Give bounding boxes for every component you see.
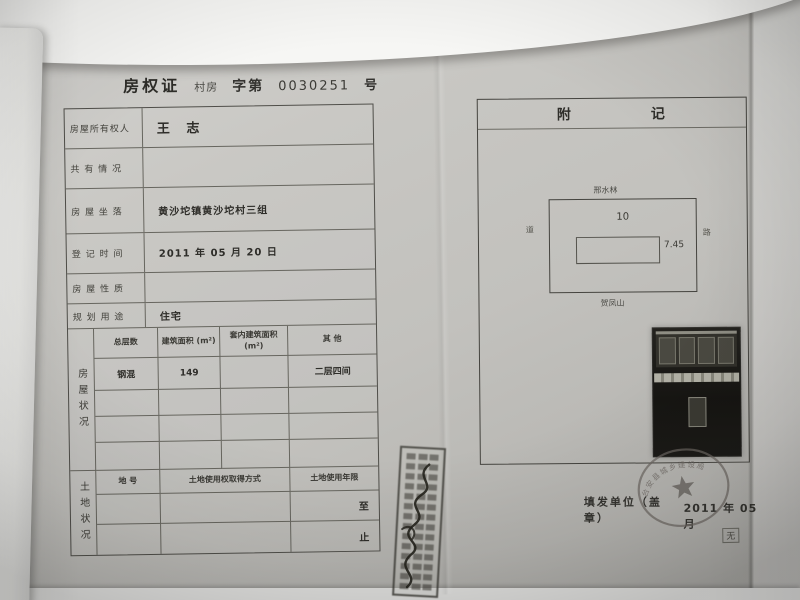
plot-east-label: 路 bbox=[703, 227, 711, 238]
co-ownership-label: 共 有 情 况 bbox=[65, 148, 144, 188]
location-value: 黄沙坨镇黄沙坨村三组 bbox=[144, 184, 375, 232]
scanned-certificate-photo: 房权证 村房 字第 0030251 号 房屋所有权人 王 志 共 有 情 况 房… bbox=[0, 0, 800, 600]
certificate-title-row: 房权证 村房 字第 0030251 号 bbox=[123, 70, 377, 97]
table-cell: 钢混 bbox=[94, 358, 158, 391]
planned-use-label: 规 划 用 途 bbox=[68, 303, 146, 328]
seal-star-icon bbox=[670, 474, 696, 499]
table-cell bbox=[159, 389, 221, 416]
column-header: 套内建筑面积 (m²) bbox=[220, 326, 288, 357]
co-ownership-value bbox=[143, 145, 374, 188]
house-status-table: 房屋状况 总层数 建筑面积 (m²) 套内建筑面积 (m²) 其 他 钢混 14… bbox=[68, 324, 378, 471]
table-cell bbox=[95, 390, 159, 417]
certificate-title: 房权证 bbox=[123, 72, 180, 97]
page-mark-box: 无 bbox=[722, 528, 739, 543]
house-nature-label: 房 屋 性 质 bbox=[67, 273, 145, 303]
table-row: 共 有 情 况 bbox=[65, 145, 374, 190]
house-status-side-label: 房屋状况 bbox=[68, 329, 96, 471]
certificate-series-label: 字第 bbox=[232, 75, 264, 95]
background-right-strip bbox=[754, 0, 800, 600]
table-row: 房 屋 坐 落 黄沙坨镇黄沙坨村三组 bbox=[66, 184, 375, 234]
photo-window-pane bbox=[678, 337, 695, 364]
house-nature-value bbox=[145, 269, 375, 302]
plot-depth-dimension: 7.45 bbox=[664, 240, 684, 250]
table-cell bbox=[289, 412, 377, 439]
table-cell bbox=[221, 388, 289, 415]
registration-date-value: 2011 年 05 月 20 日 bbox=[144, 229, 375, 272]
table-cell bbox=[161, 492, 291, 524]
table-cell: 至 bbox=[291, 490, 379, 521]
table-cell bbox=[289, 386, 377, 413]
table-cell: 止 bbox=[291, 520, 379, 551]
table-cell bbox=[161, 522, 291, 554]
owner-label: 房屋所有权人 bbox=[65, 108, 144, 148]
column-header: 建筑面积 (m²) bbox=[158, 327, 220, 358]
photo-windows bbox=[656, 331, 737, 368]
table-row: 登 记 时 间 2011 年 05 月 20 日 bbox=[67, 229, 376, 274]
column-header: 土地使用年限 bbox=[290, 466, 378, 491]
plot-house-outline bbox=[576, 236, 660, 264]
planned-use-value: 住宅 bbox=[146, 299, 376, 327]
photo-window-pane bbox=[698, 337, 715, 364]
round-seal-graphic: 台安县城乡建设局 bbox=[629, 437, 738, 538]
table-cell bbox=[221, 414, 289, 441]
column-header: 土地使用权取得方式 bbox=[160, 468, 290, 494]
table-cell bbox=[290, 438, 378, 467]
land-status-table: 土地状况 地 号 土地使用权取得方式 土地使用年限 至 止 bbox=[70, 466, 379, 555]
table-cell bbox=[97, 524, 161, 555]
handwritten-signature bbox=[383, 458, 447, 591]
column-header: 总层数 bbox=[94, 328, 158, 359]
column-header: 地 号 bbox=[96, 470, 160, 495]
certificate-serial-number: 0030251 bbox=[278, 78, 350, 94]
certificate-type: 村房 bbox=[194, 79, 218, 95]
plot-north-neighbor-label: 邢水林 bbox=[593, 185, 617, 196]
table-row: 房屋所有权人 王 志 bbox=[65, 105, 374, 150]
column-header: 其 他 bbox=[288, 324, 376, 355]
location-label: 房 屋 坐 落 bbox=[66, 188, 145, 233]
annex-header-char: 附 bbox=[557, 104, 573, 124]
certificate-main-table: 房屋所有权人 王 志 共 有 情 况 房 屋 坐 落 黄沙坨镇黄沙坨村三组 登 … bbox=[64, 103, 381, 556]
table-cell: 二层四间 bbox=[288, 354, 376, 387]
plot-diagram: 邢水林 贺凤山 道 路 10 7.45 bbox=[549, 198, 698, 293]
land-status-side-label: 土地状况 bbox=[70, 471, 97, 555]
table-cell bbox=[97, 494, 161, 525]
official-round-seal: 台安县城乡建设局 bbox=[629, 437, 738, 538]
table-cell bbox=[95, 416, 159, 443]
table-cell bbox=[159, 415, 221, 442]
owner-value: 王 志 bbox=[143, 105, 374, 148]
seal-arc-text: 台安县城乡建设局 bbox=[634, 455, 711, 499]
annex-section: 附 记 邢水林 贺凤山 道 路 10 7.45 bbox=[477, 97, 750, 465]
photo-light-band bbox=[654, 373, 739, 383]
house-photo bbox=[652, 327, 742, 458]
plot-west-label: 道 bbox=[526, 224, 534, 235]
photo-window-pane bbox=[659, 337, 676, 364]
registration-date-label: 登 记 时 间 bbox=[67, 233, 146, 273]
svg-text:台安县城乡建设局: 台安县城乡建设局 bbox=[634, 455, 711, 499]
table-row: 房 屋 性 质 bbox=[67, 269, 375, 304]
table-cell bbox=[96, 442, 160, 471]
certificate-number-suffix: 号 bbox=[364, 74, 377, 93]
annex-header: 附 记 bbox=[478, 98, 746, 130]
annex-header-char: 记 bbox=[651, 103, 667, 123]
signature-graphic bbox=[383, 458, 447, 591]
page-mark-char: 无 bbox=[726, 529, 735, 542]
table-cell bbox=[222, 440, 290, 469]
table-cell bbox=[220, 356, 288, 389]
table-cell bbox=[160, 441, 222, 470]
certificate-document: 房权证 村房 字第 0030251 号 房屋所有权人 王 志 共 有 情 况 房… bbox=[37, 38, 762, 600]
photo-door-plaque bbox=[688, 397, 706, 427]
plot-south-neighbor-label: 贺凤山 bbox=[600, 298, 624, 309]
plot-width-dimension: 10 bbox=[550, 211, 696, 223]
photo-window-pane bbox=[717, 337, 734, 364]
table-cell: 149 bbox=[158, 357, 220, 390]
